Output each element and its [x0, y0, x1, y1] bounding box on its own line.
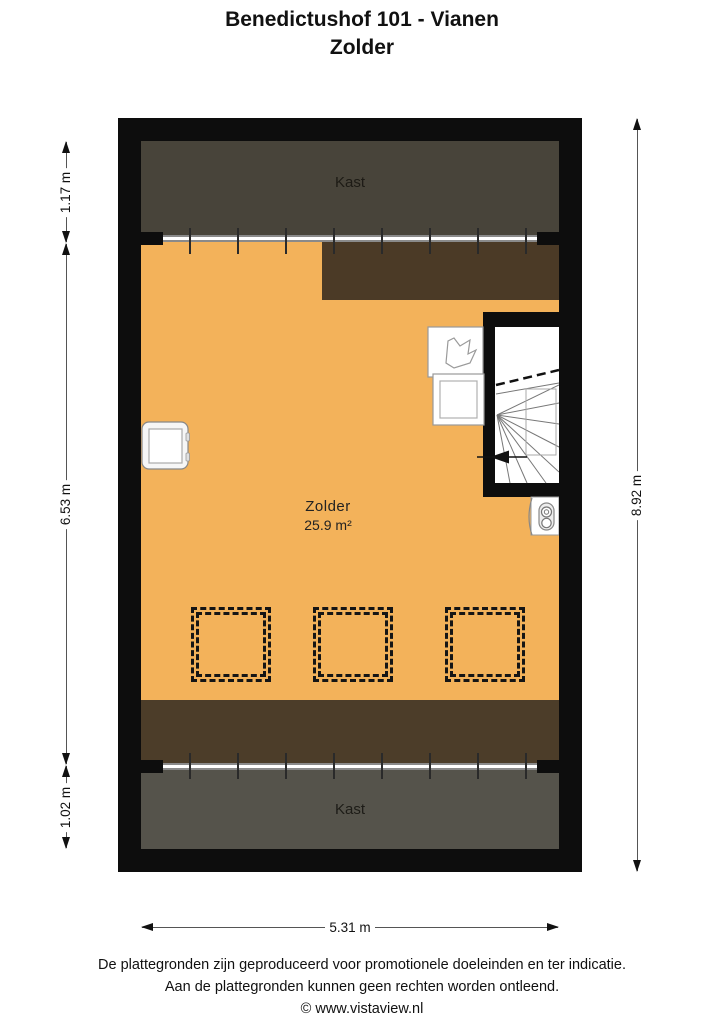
dimension-left-bottom: 1.02 m	[57, 765, 75, 849]
knee-wall-ticks-bottom	[190, 753, 526, 779]
dimension-arrow-down	[633, 860, 641, 872]
copyright: © www.vistaview.nl	[0, 999, 724, 1021]
knee-wall-ticks-top	[190, 228, 526, 254]
floor-plan: Kast Kast Zolder 25.9 m²	[118, 118, 582, 872]
dimension-arrow-up	[62, 765, 70, 777]
plan-interior: Kast Kast Zolder 25.9 m²	[141, 141, 559, 849]
room-label-zolder: Zolder 25.9 m²	[119, 498, 537, 533]
dimension-value: 5.31 m	[325, 919, 374, 936]
washing-machine-icon	[142, 422, 190, 469]
page-subtitle: Zolder	[0, 34, 724, 62]
dimension-value: 1.17 m	[58, 167, 75, 216]
dimension-arrow-down	[62, 753, 70, 765]
page-header: Benedictushof 101 - Vianen Zolder	[0, 6, 724, 61]
dimension-left-top: 1.17 m	[57, 141, 75, 243]
dimension-value: 1.02 m	[58, 782, 75, 831]
dimension-arrow-right	[547, 923, 559, 931]
dimension-left-middle: 6.53 m	[57, 243, 75, 765]
room-label-kast-bottom: Kast	[141, 801, 559, 818]
dimension-arrow-up	[633, 118, 641, 130]
dimension-arrow-down	[62, 837, 70, 849]
dimension-value: 8.92 m	[629, 470, 646, 519]
room-area: 25.9 m²	[119, 517, 537, 533]
sink-unit	[428, 327, 483, 377]
dimension-arrow-left	[141, 923, 153, 931]
worktop-unit	[433, 374, 484, 425]
boiler-icon	[539, 503, 554, 530]
stairs-down-arrow-icon	[477, 451, 527, 464]
page-title: Benedictushof 101 - Vianen	[0, 6, 724, 34]
dimension-right: 8.92 m	[628, 118, 646, 872]
dimension-arrow-down	[62, 231, 70, 243]
dimension-arrow-up	[62, 243, 70, 255]
disclaimer-line-1: De plattegronden zijn geproduceerd voor …	[0, 955, 724, 977]
stair-headroom-line	[496, 370, 559, 385]
disclaimer-line-2: Aan de plattegronden kunnen geen rechten…	[0, 977, 724, 999]
dimension-arrow-up	[62, 141, 70, 153]
dimension-value: 6.53 m	[58, 479, 75, 528]
dimension-bottom: 5.31 m	[141, 918, 559, 936]
floorplan-page: Benedictushof 101 - Vianen Zolder	[0, 0, 724, 1024]
disclaimer: De plattegronden zijn geproduceerd voor …	[0, 955, 724, 1020]
room-name: Zolder	[119, 498, 537, 515]
plan-vector-details	[141, 141, 559, 849]
stair-treads	[496, 383, 559, 483]
room-label-kast-top: Kast	[141, 174, 559, 191]
